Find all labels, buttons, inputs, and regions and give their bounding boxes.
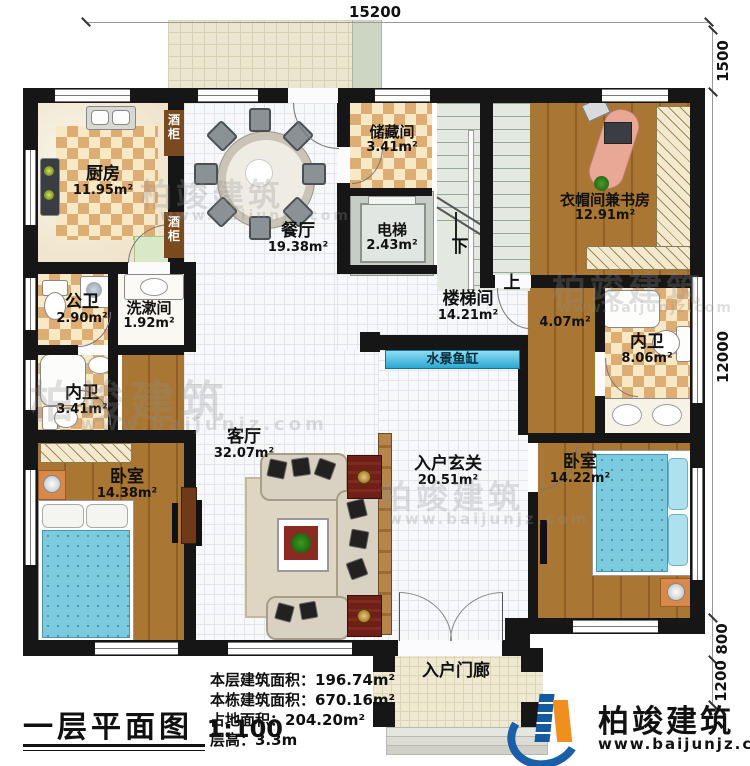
room-label-storage: 储藏间 3.41m²	[352, 124, 432, 155]
stair-stringer	[468, 130, 474, 290]
window-storage-top	[375, 89, 430, 102]
entry-door-opening	[398, 640, 502, 656]
stat-building-area: 本栋建筑面积：670.16m²	[210, 690, 395, 710]
watermark-url-4: www.baijunjz.com	[388, 510, 589, 528]
room-label-study: 衣帽间兼书房 12.91m²	[545, 192, 665, 223]
wall-living-left-b	[184, 430, 196, 487]
dining-area: 19.38m²	[253, 241, 343, 256]
bedroom-left-tv	[172, 503, 178, 543]
room-label-corridor: 4.07m²	[533, 316, 597, 331]
window-dining-top	[198, 89, 258, 102]
stat-floor-height: 层高：3.3m	[210, 730, 395, 750]
dining-chair-1	[302, 163, 326, 185]
washroom-name: 洗漱间	[113, 300, 185, 317]
washroom-area: 1.92m²	[113, 317, 185, 332]
room-label-bedroom-left: 卧室 14.38m²	[88, 468, 166, 502]
window-study-top	[602, 89, 668, 102]
window-bedroomright-right	[692, 468, 703, 580]
dining-name: 餐厅	[253, 222, 343, 241]
room-label-ensuite-right: 内卫 8.06m²	[612, 333, 682, 367]
dimension-right-1500: 1500	[714, 38, 732, 84]
bedroom-right-name: 卧室	[535, 453, 625, 472]
foyer-cabinet-bottom-knob	[357, 609, 371, 623]
brand-url: www.baijunjz.com	[598, 735, 750, 753]
dining-chair-7	[249, 108, 271, 132]
room-label-bedroom-right: 卧室 14.22m²	[535, 453, 625, 487]
wall-aquarium-cap	[360, 332, 380, 352]
sofa-top-pillow-2	[291, 457, 311, 477]
window-kitchen-left	[25, 150, 36, 225]
terrace-planter	[352, 20, 382, 88]
room-label-dining: 餐厅 19.38m²	[253, 222, 343, 256]
foyer-cabinet-top-knob	[357, 470, 371, 484]
aquarium: 水景鱼缸	[385, 350, 520, 369]
bedroom-right-lamp	[667, 583, 685, 601]
study-wardrobe-right	[656, 106, 692, 254]
window-kitchen-top	[55, 89, 130, 102]
stairs-up-label: 上	[500, 274, 524, 293]
bedroom-left-pillow-2	[86, 504, 128, 528]
bedroom-left-lamp	[43, 475, 61, 493]
wall-elevator-bottom	[337, 265, 437, 274]
elevator-area: 2.43m²	[354, 239, 430, 254]
floor-plan: 酒柜 酒柜 水景鱼缸	[0, 0, 750, 766]
ensuite-right-door-opening	[595, 352, 605, 396]
bedroom-left-mattress	[42, 530, 130, 638]
room-label-stairwell: 楼梯间 14.21m²	[420, 290, 516, 324]
sofa-bottom-pillow-2	[299, 601, 319, 621]
room-label-public-bath: 公卫 2.90m²	[44, 293, 120, 327]
elevator-name: 电梯	[354, 222, 430, 239]
room-label-elevator: 电梯 2.43m²	[354, 222, 430, 253]
stairwell-area: 14.21m²	[420, 309, 516, 324]
watermark-url-3: www.baijunjz.com	[558, 300, 733, 316]
stove-burner-2	[44, 190, 54, 200]
stairs-down-label: 下	[448, 238, 472, 257]
ensuite-right-sink-1	[612, 404, 642, 426]
dim-tick-r2	[708, 87, 718, 97]
bedroom-left-pillow-1	[42, 504, 84, 528]
window-bedroomleft-bottom	[95, 642, 178, 655]
porch-column-tr	[521, 648, 543, 672]
wine-cabinet-1: 酒柜	[164, 110, 184, 156]
wall-storage-elevator	[350, 188, 432, 196]
bedroom-right-area: 14.22m²	[535, 472, 625, 487]
dimension-line-right	[712, 30, 713, 706]
porch-name: 入户门廊	[408, 662, 504, 681]
window-bedroomleft-left	[25, 470, 36, 565]
ensuite-right-sink-2	[652, 404, 682, 426]
bedroom-right-pillow-1	[668, 458, 688, 510]
wall-living-left-c	[184, 540, 196, 640]
kitchen-door-opening	[128, 262, 170, 274]
title-underline-thin	[23, 750, 205, 751]
window-bedroomright-bottom	[573, 620, 658, 633]
bedroom-right-pillow-2	[668, 514, 688, 566]
storage-name: 储藏间	[352, 124, 432, 141]
stove-burner-1	[44, 166, 54, 176]
elevator-door	[368, 196, 416, 205]
dimension-right-12000: 12000	[714, 328, 732, 386]
dimension-top-value: 15200	[340, 3, 410, 21]
plan-title: 一层平面图	[23, 710, 193, 745]
bedroom-left-area: 14.38m²	[88, 487, 166, 502]
coffee-table-plant	[291, 533, 311, 553]
wall-aquarium	[375, 335, 527, 350]
balcony-door-opening	[288, 88, 338, 103]
brand-logo-tower-orange	[553, 700, 572, 742]
washroom-sink	[140, 278, 168, 296]
brand-logo	[505, 692, 595, 758]
study-name: 衣帽间兼书房	[545, 192, 665, 209]
dim-tick-r1	[708, 25, 718, 35]
window-publicbath-left	[25, 278, 36, 330]
terrace	[168, 20, 352, 88]
room-label-kitchen: 厨房 11.95m²	[58, 165, 148, 199]
title-underline-thick	[23, 744, 205, 747]
public-bath-area: 2.90m²	[44, 312, 120, 327]
wall-living-left-a	[184, 262, 196, 352]
bedroom-left-name: 卧室	[88, 468, 166, 487]
room-label-washroom: 洗漱间 1.92m²	[113, 300, 185, 331]
dimension-right-800: 800	[713, 619, 731, 659]
ensuite-right-area: 8.06m²	[612, 352, 682, 367]
window-living-bottom	[228, 642, 352, 655]
kitchen-sink-basin-2	[112, 110, 130, 125]
study-monitor	[604, 122, 632, 144]
living-tv	[196, 500, 202, 546]
study-plant	[594, 176, 609, 191]
watermark-url-1: www.baijunjz.com	[160, 208, 351, 224]
tv-cabinet-left	[181, 487, 197, 544]
stat-floor-area: 本层建筑面积：196.74m²	[210, 670, 395, 690]
storage-area: 3.41m²	[352, 141, 432, 156]
kitchen-area: 11.95m²	[58, 184, 148, 199]
wall-bedroom-right-top	[528, 433, 690, 443]
room-label-porch: 入户门廊	[408, 662, 504, 681]
sofa-right-pillow-2	[349, 529, 370, 550]
kitchen-sink-basin-1	[91, 110, 109, 125]
study-area: 12.91m²	[545, 209, 665, 224]
storage-door-opening	[337, 147, 350, 183]
wall-study-left	[480, 103, 493, 275]
dimension-line-top	[85, 22, 710, 23]
ensuite-right-name: 内卫	[612, 333, 682, 352]
watermark-url-2: www.baijunjz.com	[80, 414, 328, 435]
porch-column-tl	[373, 648, 395, 672]
corridor-area: 4.07m²	[533, 316, 597, 331]
living-area: 32.07m²	[202, 447, 286, 462]
stats-block: 本层建筑面积：196.74m² 本栋建筑面积：670.16m² 占地面积：204…	[210, 670, 395, 750]
bedroom-left-closet	[40, 443, 132, 463]
kitchen-name: 厨房	[58, 165, 148, 184]
stat-footprint-area: 占地面积：204.20m²	[210, 710, 395, 730]
public-bath-name: 公卫	[44, 293, 120, 312]
